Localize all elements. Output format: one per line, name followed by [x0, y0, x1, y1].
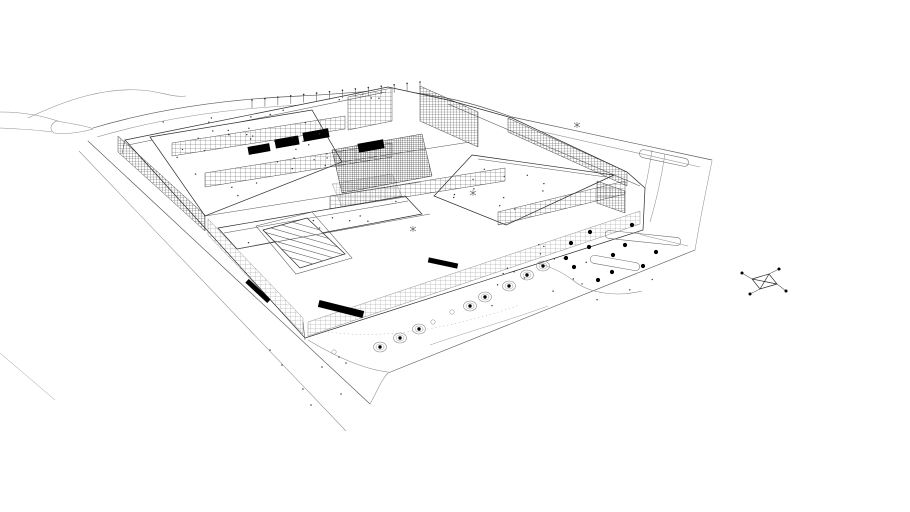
scatter-dot — [250, 138, 251, 139]
scatter-dot — [295, 149, 296, 150]
scatter-dot — [513, 271, 514, 272]
scatter-dot — [527, 175, 528, 176]
scatter-dot — [282, 110, 283, 111]
sparkle-mark — [574, 122, 580, 128]
scatter-dot — [293, 157, 294, 158]
tree-trunk-dot — [398, 336, 401, 339]
scatter-dot — [208, 121, 209, 122]
scatter-dot — [538, 244, 539, 245]
scatter-dot — [554, 258, 555, 259]
scatter-dot — [395, 201, 396, 202]
dot-tree — [610, 270, 614, 274]
scatter-dot — [270, 114, 271, 115]
scatter-dot — [497, 284, 498, 285]
scatter-dot — [176, 157, 177, 158]
scatter-dot — [349, 220, 350, 221]
tree-trunk-dot — [378, 345, 381, 348]
scatter-dot — [319, 227, 320, 228]
scatter-dot — [319, 133, 320, 134]
scatter-dot — [378, 98, 379, 99]
scatter-dot — [313, 159, 314, 160]
scatter-dot — [231, 187, 232, 188]
scatter-dot — [237, 195, 238, 196]
scatter-dot — [339, 99, 340, 100]
scatter-dot — [499, 205, 500, 206]
dot-tree — [623, 243, 627, 247]
garden-path-1 — [308, 340, 388, 372]
scatter-dot — [326, 157, 327, 158]
scatter-dot — [552, 290, 553, 291]
scatter-dot — [540, 253, 541, 254]
scatter-dot — [277, 161, 278, 162]
scatter-dot — [228, 134, 229, 135]
scatter-dot — [162, 121, 163, 122]
junction-island — [51, 121, 93, 134]
parking-island — [639, 149, 690, 167]
scatter-dot — [274, 141, 275, 142]
garden-path-3 — [430, 306, 548, 345]
junction-arm-lower — [0, 128, 52, 132]
open-circle-mark — [450, 310, 454, 314]
dot-tree — [596, 278, 600, 282]
scatter-dot — [291, 137, 292, 138]
tree-trunk-dot — [525, 273, 528, 276]
tree-trunk-dot — [483, 295, 486, 298]
open-circle-mark — [332, 350, 336, 354]
wireframe-canvas[interactable] — [0, 0, 910, 512]
scatter-dot — [371, 97, 372, 98]
ground-dot — [321, 366, 323, 368]
scatter-dot — [195, 173, 196, 174]
scatter-dot — [313, 220, 314, 221]
scatter-dot — [302, 141, 303, 142]
scatter-dot — [504, 176, 505, 177]
scatter-dot — [507, 268, 508, 269]
scatter-dot — [250, 116, 251, 117]
tree-trunk-dot — [541, 264, 544, 267]
scatter-dot — [198, 138, 199, 139]
tree-trunk-dot — [417, 327, 420, 330]
ground-dot — [340, 393, 342, 395]
scatter-dot — [211, 117, 212, 118]
scatter-dot — [212, 130, 213, 131]
scatter-dot — [543, 183, 544, 184]
scatter-dot — [503, 197, 504, 198]
scatter-dot — [454, 194, 455, 195]
misc-ground-dots — [269, 349, 347, 406]
scatter-dot — [292, 168, 293, 169]
scatter-dot — [491, 305, 492, 306]
scatter-dot — [182, 149, 183, 150]
scatter-dot — [573, 278, 574, 279]
scatter-dot — [332, 217, 333, 218]
axis-glyph — [741, 268, 788, 296]
tree-trunk-dot — [507, 284, 510, 287]
building-layer — [118, 81, 653, 340]
scatter-dot — [248, 128, 249, 129]
road-topleft-curve — [28, 90, 186, 118]
scatter-dot — [484, 169, 485, 170]
scatter-dot — [359, 215, 360, 216]
scatter-dot — [585, 262, 586, 263]
scatter-dot — [204, 150, 205, 151]
scatter-dot — [305, 122, 306, 123]
dot-tree — [569, 241, 573, 245]
scatter-dot — [228, 130, 229, 131]
scatter-dot — [367, 221, 368, 222]
scatter-dot — [472, 179, 473, 180]
ground-dot — [345, 362, 347, 364]
scatter-dot — [543, 246, 544, 247]
road-corner-curve — [370, 373, 388, 404]
scatter-dot — [652, 279, 653, 280]
scatter-dot — [542, 190, 543, 191]
open-circle-mark — [431, 320, 435, 324]
scatter-dot — [362, 94, 363, 95]
scatter-dot — [248, 242, 249, 243]
dot-tree — [564, 256, 568, 260]
scatter-dot — [473, 188, 474, 189]
scatter-dot — [502, 273, 503, 274]
dot-tree — [587, 245, 591, 249]
junction-arm-upper — [0, 112, 58, 121]
site-boundary-east-curve — [695, 161, 712, 250]
dot-tree — [588, 230, 592, 234]
scatter-dot — [308, 144, 309, 145]
scatter-dot — [246, 134, 247, 135]
dot-tree — [641, 264, 645, 268]
parking-island — [590, 255, 641, 272]
scatter-dot — [514, 208, 515, 209]
ground-dot — [269, 349, 271, 351]
dot-tree — [572, 265, 576, 269]
scatter-dot — [596, 299, 597, 300]
scatter-dot — [252, 135, 253, 136]
scatter-dot — [256, 182, 257, 183]
diagonal-road-faint-tail — [0, 353, 55, 400]
ground-dot — [281, 364, 283, 366]
ground-dot — [310, 404, 312, 406]
dot-tree — [630, 223, 634, 227]
wireframe-svg — [0, 0, 910, 512]
tree-trunk-dot — [468, 304, 471, 307]
scatter-dot — [326, 153, 327, 154]
parking-road-2 — [650, 154, 665, 222]
dot-tree — [611, 253, 615, 257]
scatter-dot — [325, 165, 326, 166]
scatter-dot — [581, 283, 582, 284]
dot-tree — [654, 250, 658, 254]
ground-dot — [302, 388, 304, 390]
scatter-dot — [629, 289, 630, 290]
ground-dot — [338, 356, 340, 358]
scatter-dot — [453, 197, 454, 198]
